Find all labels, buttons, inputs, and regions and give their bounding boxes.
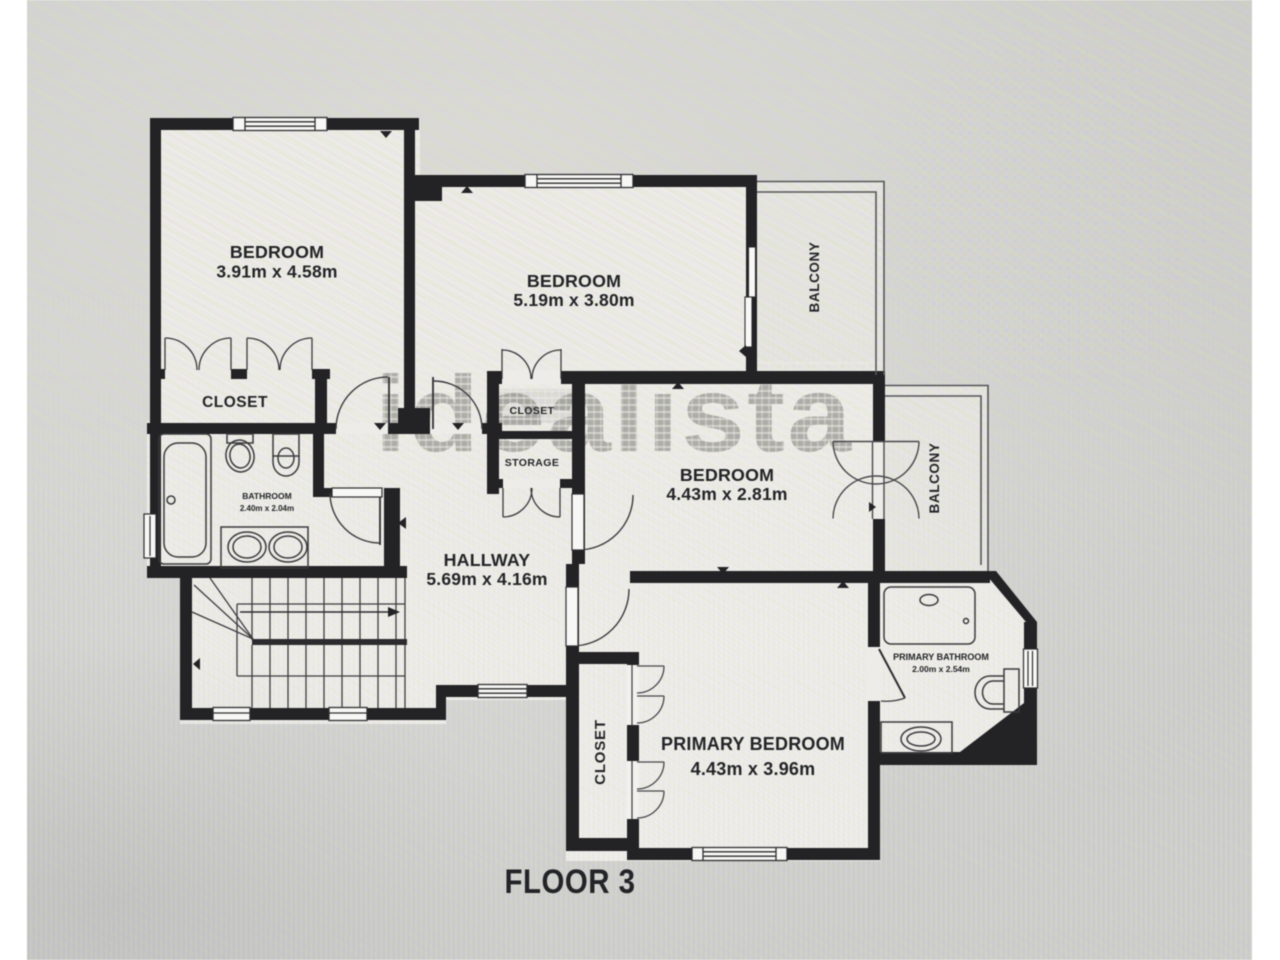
svg-text:BATHROOM: BATHROOM bbox=[242, 491, 291, 501]
svg-text:CLOSET: CLOSET bbox=[592, 719, 609, 785]
svg-text:4.43m x 2.81m: 4.43m x 2.81m bbox=[666, 484, 787, 504]
svg-text:2.00m x 2.54m: 2.00m x 2.54m bbox=[912, 664, 970, 674]
svg-text:STORAGE: STORAGE bbox=[505, 457, 560, 469]
svg-text:HALLWAY: HALLWAY bbox=[444, 550, 531, 570]
svg-text:CLOSET: CLOSET bbox=[510, 405, 555, 417]
svg-text:BEDROOM: BEDROOM bbox=[527, 271, 621, 291]
svg-text:PRIMARY BEDROOM: PRIMARY BEDROOM bbox=[661, 734, 845, 754]
svg-text:BEDROOM: BEDROOM bbox=[680, 465, 774, 485]
svg-text:BEDROOM: BEDROOM bbox=[230, 242, 324, 262]
svg-text:CLOSET: CLOSET bbox=[202, 394, 268, 411]
svg-text:PRIMARY BATHROOM: PRIMARY BATHROOM bbox=[893, 652, 989, 662]
svg-text:BALCONY: BALCONY bbox=[927, 443, 942, 514]
svg-text:BALCONY: BALCONY bbox=[807, 242, 822, 313]
svg-text:5.69m x 4.16m: 5.69m x 4.16m bbox=[426, 569, 547, 589]
svg-text:2.40m x 2.04m: 2.40m x 2.04m bbox=[240, 504, 294, 513]
svg-text:5.19m x 3.80m: 5.19m x 3.80m bbox=[513, 290, 634, 310]
svg-text:FLOOR 3: FLOOR 3 bbox=[505, 862, 636, 901]
svg-text:3.91m x 4.58m: 3.91m x 4.58m bbox=[216, 262, 337, 282]
svg-text:4.43m x 3.96m: 4.43m x 3.96m bbox=[691, 759, 816, 779]
